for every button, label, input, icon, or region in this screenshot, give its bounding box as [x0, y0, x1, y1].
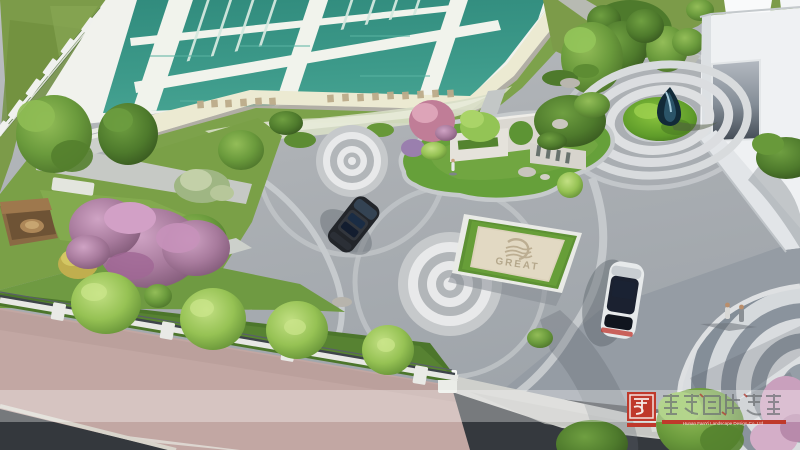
svg-text:Hunan FanYi Landscape Design C: Hunan FanYi Landscape Design Co.,Ltd — [683, 421, 764, 426]
